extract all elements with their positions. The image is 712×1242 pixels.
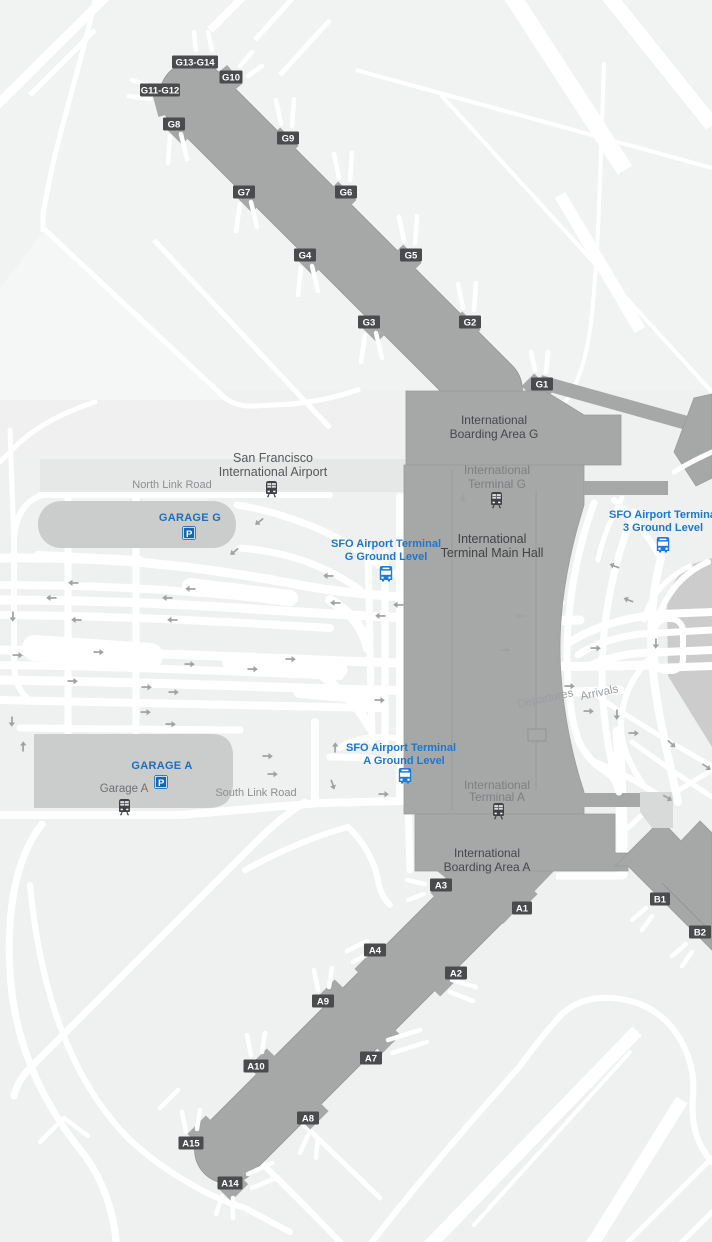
svg-text:G1: G1 <box>536 379 549 390</box>
svg-text:G Ground Level: G Ground Level <box>345 551 428 563</box>
svg-text:G7: G7 <box>238 187 251 198</box>
svg-text:A7: A7 <box>365 1053 377 1064</box>
svg-text:Terminal A: Terminal A <box>469 790 525 804</box>
svg-text:South Link Road: South Link Road <box>215 787 296 799</box>
svg-text:GARAGE G: GARAGE G <box>159 512 221 524</box>
svg-text:Garage A: Garage A <box>100 783 149 795</box>
svg-text:G5: G5 <box>405 250 418 261</box>
svg-text:International: International <box>464 463 530 477</box>
svg-text:Boarding Area A: Boarding Area A <box>444 860 531 874</box>
svg-text:G9: G9 <box>282 133 295 144</box>
svg-text:North Link Road: North Link Road <box>132 479 212 491</box>
svg-text:International Airport: International Airport <box>219 465 328 479</box>
svg-text:A Ground Level: A Ground Level <box>363 755 445 767</box>
svg-text:Boarding Area G: Boarding Area G <box>450 427 539 441</box>
svg-text:International: International <box>454 846 520 860</box>
svg-text:3 Ground Level: 3 Ground Level <box>623 522 703 534</box>
svg-text:A14: A14 <box>221 1178 239 1189</box>
svg-text:A15: A15 <box>182 1138 200 1149</box>
svg-text:International: International <box>461 413 527 427</box>
svg-text:Terminal G: Terminal G <box>468 477 526 491</box>
svg-text:G3: G3 <box>363 317 376 328</box>
svg-text:A9: A9 <box>317 996 329 1007</box>
svg-text:International: International <box>458 532 527 546</box>
svg-text:G2: G2 <box>464 317 477 328</box>
svg-text:A1: A1 <box>516 903 529 914</box>
svg-text:A10: A10 <box>247 1061 264 1072</box>
svg-text:SFO Airport Terminal: SFO Airport Terminal <box>331 538 441 550</box>
svg-text:G8: G8 <box>168 119 181 130</box>
svg-text:A2: A2 <box>450 968 462 979</box>
svg-text:G13-G14: G13-G14 <box>175 57 215 68</box>
svg-text:GARAGE A: GARAGE A <box>131 760 192 772</box>
svg-text:B2: B2 <box>694 927 706 938</box>
svg-text:SFO Airport Terminal: SFO Airport Terminal <box>609 509 712 521</box>
svg-text:G6: G6 <box>340 187 353 198</box>
svg-text:San Francisco: San Francisco <box>233 451 313 465</box>
svg-text:A8: A8 <box>302 1113 314 1124</box>
svg-text:A4: A4 <box>369 945 382 956</box>
svg-text:B1: B1 <box>654 894 667 905</box>
svg-text:G4: G4 <box>299 250 312 261</box>
svg-text:G10: G10 <box>222 72 240 83</box>
svg-text:Terminal Main Hall: Terminal Main Hall <box>441 546 544 560</box>
svg-text:G11-G12: G11-G12 <box>141 85 180 96</box>
svg-text:A3: A3 <box>435 880 447 891</box>
svg-text:SFO Airport Terminal: SFO Airport Terminal <box>346 742 456 754</box>
